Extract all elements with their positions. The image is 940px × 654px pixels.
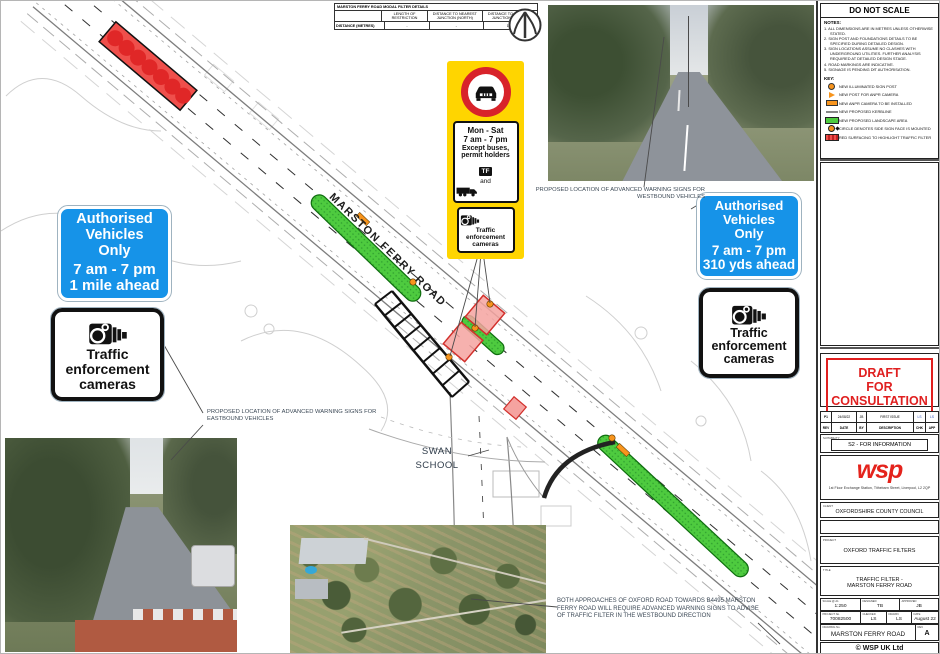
- north-arrow-icon: [507, 7, 543, 43]
- title-label: TITLE: [823, 568, 831, 572]
- field-label: CHECKED: [863, 613, 876, 616]
- rev-cell: LS: [914, 412, 926, 422]
- client-box: CLIENT OXFORDSHIRE COUNTY COUNCIL: [820, 502, 939, 518]
- key-item: NEW ILLUMINATED SIGN POST: [839, 84, 897, 89]
- title-box: TITLE TRAFFIC FILTER - MARSTON FERRY ROA…: [820, 566, 939, 596]
- wsp-logo: wsp: [821, 457, 938, 485]
- key-label: KEY:: [824, 76, 938, 81]
- red-hatch-icon: [825, 134, 839, 141]
- aerial-pool: [305, 566, 317, 574]
- sign-line: Only: [61, 244, 168, 260]
- project-label: PROJECT: [823, 538, 836, 542]
- sign-distance: 310 yds ahead: [700, 258, 798, 273]
- orange-arrow-icon: [829, 92, 835, 98]
- title-block-panel: DO NOT SCALE NOTES: 1. ALL DIMENSIONS AR…: [816, 1, 940, 654]
- suitability-status: S2 - FOR INFORMATION: [831, 439, 928, 451]
- sign-time: 7 am - 7 pm: [61, 262, 168, 279]
- camera-plate: Traffic enforcement cameras: [457, 207, 515, 253]
- sign-authorised-vehicles-310yds: Authorised Vehicles Only 7 am - 7 pm 310…: [697, 193, 801, 279]
- green-rect-icon: [825, 117, 839, 124]
- speed-camera-icon: [730, 300, 768, 327]
- client-name: OXFORDSHIRE COUNTY COUNCIL: [821, 503, 938, 515]
- rev-header: CHK: [914, 423, 926, 433]
- sign-traffic-enforcement-cameras-east: Traffic enforcement cameras: [699, 288, 799, 378]
- rev-header: APP: [926, 423, 938, 433]
- rev-cell: 24/08/22: [832, 412, 857, 422]
- suitability-box: SUITABILITY S2 - FOR INFORMATION: [820, 434, 939, 453]
- speed-camera-icon: [87, 317, 129, 347]
- sign-line: cameras: [460, 241, 512, 248]
- truck-icon: [456, 185, 478, 198]
- table-cell: -: [430, 22, 484, 29]
- sign-line: Traffic: [460, 227, 512, 234]
- project-box: PROJECT OXFORD TRAFFIC FILTERS: [820, 536, 939, 564]
- aerial-building: [299, 538, 368, 564]
- field-label: DRAWING No.: [823, 626, 841, 629]
- key-item: NEW PROPOSED KERBLINE: [839, 109, 892, 114]
- plate-except: permit holders: [456, 152, 516, 159]
- draft-line: FOR CONSULTATION: [828, 380, 931, 408]
- wsp-address: 1st Floor Exchange Station, Tithebarn St…: [821, 486, 938, 490]
- blank-box: [820, 520, 939, 534]
- label-line: SCHOOL: [399, 459, 475, 473]
- sign-line: Vehicles: [700, 213, 798, 227]
- car-icon: [471, 81, 501, 103]
- annotation-oxford-road: BOTH APPROACHES OF OXFORD ROAD TOWARDS B…: [557, 598, 765, 621]
- draft-stamp: DRAFT FOR CONSULTATION: [826, 358, 933, 415]
- draft-stamp-box: DRAFT FOR CONSULTATION: [820, 353, 939, 407]
- copyright-box: © WSP UK Ltd: [820, 642, 939, 654]
- rev-header: DESCRIPTION: [867, 423, 914, 433]
- field-label: DRAWN: [889, 613, 899, 616]
- fields-row-1: SCALE @ A11:250 DESIGNEDTB APPROVEDJB: [820, 598, 939, 611]
- label-line: SWAN: [399, 445, 475, 459]
- plate-and: and: [456, 178, 516, 185]
- parked-van: [191, 545, 235, 587]
- sign-time: 7 am - 7 pm: [700, 244, 798, 259]
- key-item: NEW ANPR CAMERA TO BE INSTALLED: [839, 101, 912, 106]
- plate-time: 7 am - 7 pm: [456, 135, 516, 144]
- rev-header: DATE: [832, 423, 857, 433]
- tf-badge: TF: [479, 167, 493, 176]
- client-label: CLIENT: [823, 504, 833, 508]
- sign-distance: 1 mile ahead: [61, 278, 168, 295]
- no-motor-vehicles-sign: [461, 67, 511, 117]
- section-divider: [820, 159, 939, 161]
- sign-line: cameras: [79, 377, 136, 392]
- field-label: SCALE @ A1: [823, 600, 839, 603]
- sign-authorised-vehicles-1mile: Authorised Vehicles Only 7 am - 7 pm 1 m…: [58, 206, 171, 301]
- section-divider: [820, 347, 939, 349]
- fields-row-2: PROJECT No.70082500 CHECKEDLS DRAWNLS DA…: [820, 611, 939, 624]
- sign-line: Authorised: [700, 199, 798, 213]
- sign-group-filter-plate: Mon - Sat 7 am - 7 pm Except buses, perm…: [447, 61, 524, 259]
- note-item: 2. SIGN POST AND FOUNDATIONS DETAILS TO …: [824, 36, 936, 46]
- photo-aerial-oxford-road: [290, 525, 546, 653]
- key-item: NEW POST FOR ANPR CAMERA: [839, 92, 898, 97]
- notes-label: NOTES:: [824, 20, 938, 25]
- photo-westbound-street-view: [548, 5, 814, 181]
- landscape-areas: [308, 192, 752, 581]
- rev-cell: FIRST ISSUE: [867, 412, 914, 422]
- plate-except: Except buses,: [456, 145, 516, 152]
- rev-cell: JB: [857, 412, 867, 422]
- draft-line: DRAFT: [828, 366, 931, 380]
- orange-rect-icon: [826, 100, 838, 106]
- speed-camera-icon: [460, 212, 480, 227]
- copyright: © WSP UK Ltd: [821, 643, 938, 652]
- circle-sign-face-icon: [828, 125, 835, 132]
- rev-cell: P1: [821, 412, 832, 422]
- revision-table: P1 24/08/22 JB FIRST ISSUE LS LS REV DAT…: [820, 411, 939, 433]
- sign-line: Authorised: [61, 212, 168, 228]
- rev-header: REV: [821, 423, 832, 433]
- key-item: CIRCLE DENOTES SIDE SIGN FACE IS MOUNTED: [839, 126, 931, 131]
- project-name: OXFORD TRAFFIC FILTERS: [821, 537, 938, 554]
- photo-eastbound-street-view: [5, 438, 237, 652]
- do-not-scale: DO NOT SCALE: [821, 4, 938, 18]
- rev-cell: LS: [926, 412, 938, 422]
- sign-line: cameras: [724, 353, 775, 366]
- field-label: PROJECT No.: [823, 613, 840, 616]
- sign-line: Traffic: [730, 327, 768, 340]
- sign-line: Traffic: [86, 347, 128, 362]
- sign-line: enforcement: [65, 362, 149, 377]
- suitability-label: SUITABILITY: [823, 436, 840, 440]
- drawing-sheet: MARSTON FERRY ROAD MODAL FILTER DETAILS …: [0, 0, 940, 654]
- plate-days: Mon - Sat: [456, 126, 516, 135]
- sign-line: enforcement: [460, 234, 512, 241]
- swan-school-label: SWAN SCHOOL: [399, 445, 475, 474]
- lamp-post: [688, 16, 690, 108]
- sign-line: Vehicles: [61, 228, 168, 244]
- table-cell: -: [385, 22, 429, 29]
- notes-key-box: DO NOT SCALE NOTES: 1. ALL DIMENSIONS AR…: [820, 3, 939, 159]
- kerbline-icon: [826, 111, 838, 113]
- note-item: 1. ALL DIMENSIONS ARE IN METRES UNLESS O…: [824, 26, 936, 36]
- note-item: 3. SIGN LOCATIONS ASSUME NO CLASHES WITH…: [824, 46, 936, 61]
- red-filter-squares: [443, 295, 526, 419]
- sign-line: Only: [700, 227, 798, 241]
- key-item: NEW PROPOSED LANDSCAPE AREA: [839, 118, 907, 123]
- rev-header: BY: [857, 423, 867, 433]
- field-label: DESIGNED: [863, 600, 877, 603]
- field-label: APPROVED: [902, 600, 917, 603]
- restriction-times-plate: Mon - Sat 7 am - 7 pm Except buses, perm…: [453, 121, 519, 203]
- field-label: DATE: [914, 613, 921, 616]
- drawing-number-row: DRAWING No.MARSTON FERRY ROAD REVA: [820, 624, 939, 641]
- field-label: REV: [918, 626, 924, 629]
- annotation-westbound: PROPOSED LOCATION OF ADVANCED WARNING SI…: [529, 187, 705, 201]
- sign-traffic-enforcement-cameras-west: Traffic enforcement cameras: [51, 308, 164, 401]
- annotation-eastbound: PROPOSED LOCATION OF ADVANCED WARNING SI…: [207, 409, 397, 423]
- orange-dot-icon: [828, 83, 835, 90]
- drawing-title: TRAFFIC FILTER -: [821, 567, 938, 583]
- col-header: DISTANCE TO NEAREST JUNCTION (NORTH): [428, 11, 483, 21]
- row-label: DISTANCE (METRES): [335, 22, 385, 29]
- wsp-logo-box: wsp 1st Floor Exchange Station, Tithebar…: [820, 455, 939, 500]
- empty-box: [820, 162, 939, 346]
- key-item: RED SURFACING TO HIGHLIGHT TRAFFIC FILTE…: [839, 135, 931, 140]
- col-header: LENGTH OF RESTRICTION: [382, 11, 427, 21]
- note-item: 5. SIGNAGE IS PENDING DfT AUTHORISATION.: [824, 67, 936, 72]
- drawing-title: MARSTON FERRY ROAD: [821, 583, 938, 589]
